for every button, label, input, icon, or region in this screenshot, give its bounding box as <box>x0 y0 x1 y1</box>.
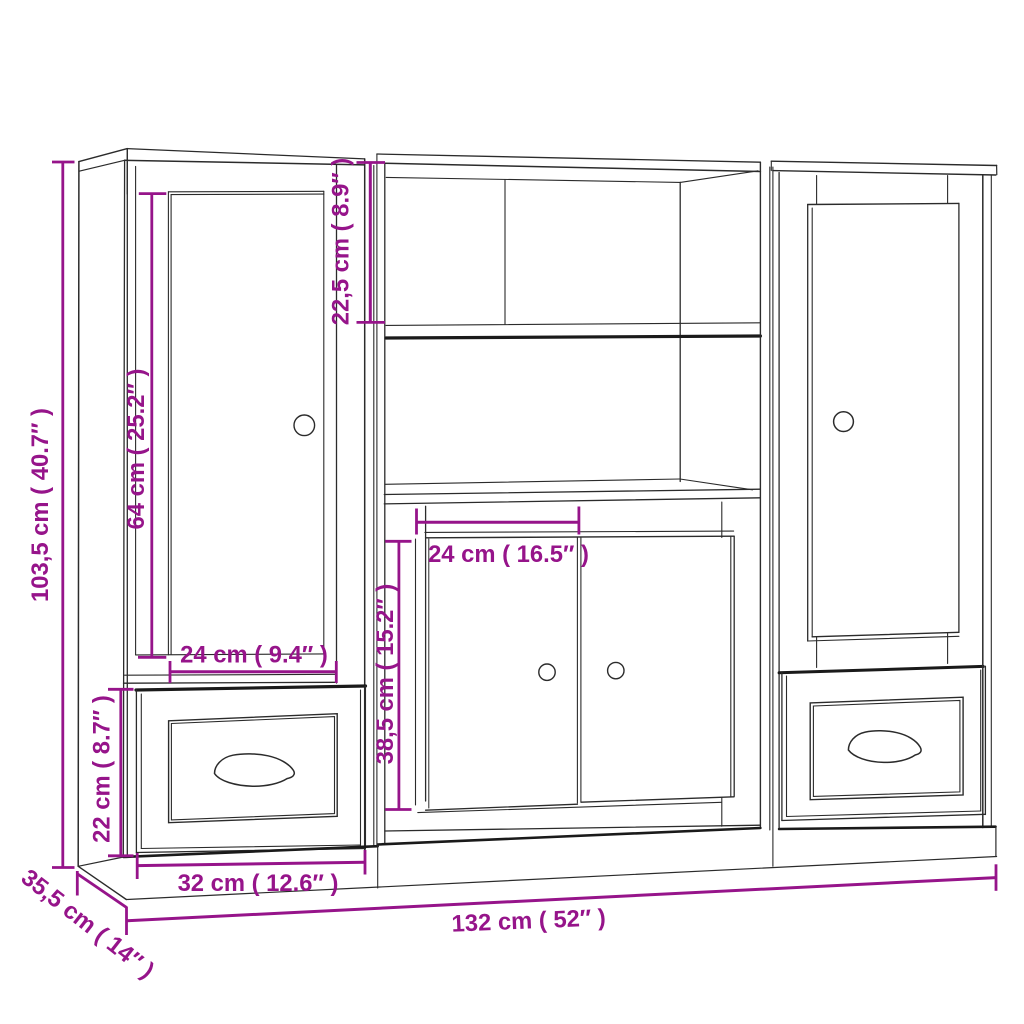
svg-text:24 cm ( 9.4″ ): 24 cm ( 9.4″ ) <box>180 642 328 669</box>
svg-text:64 cm ( 25.2″ ): 64 cm ( 25.2″ ) <box>123 369 150 530</box>
svg-text:22 cm ( 8.7″ ): 22 cm ( 8.7″ ) <box>89 695 116 843</box>
svg-text:38,5 cm ( 15.2″ ): 38,5 cm ( 15.2″ ) <box>372 584 399 765</box>
svg-text:24 cm ( 16.5″ ): 24 cm ( 16.5″ ) <box>428 541 589 568</box>
svg-text:103,5 cm ( 40.7″ ): 103,5 cm ( 40.7″ ) <box>27 408 54 602</box>
svg-text:22,5 cm ( 8.9″ ): 22,5 cm ( 8.9″ ) <box>328 158 355 326</box>
svg-text:32 cm ( 12.6″ ): 32 cm ( 12.6″ ) <box>178 870 339 897</box>
